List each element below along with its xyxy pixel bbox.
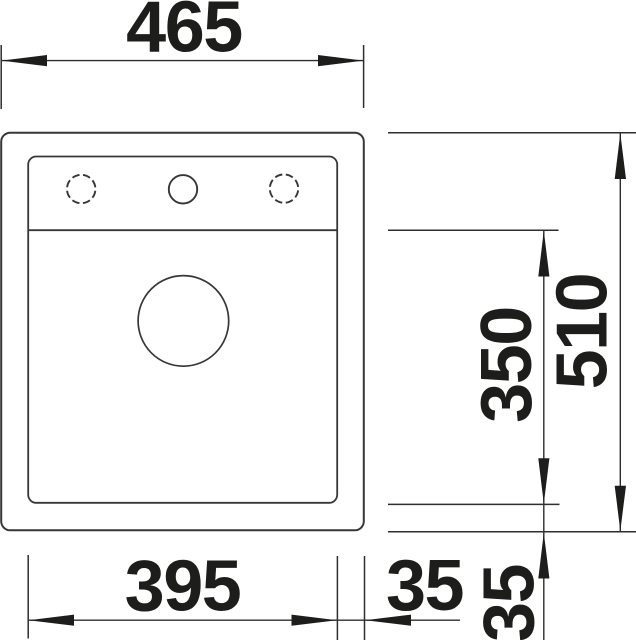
svg-text:395: 395: [125, 547, 241, 627]
svg-text:510: 510: [543, 274, 623, 390]
svg-text:465: 465: [126, 0, 242, 68]
svg-text:35: 35: [386, 546, 464, 626]
svg-text:350: 350: [467, 307, 547, 423]
svg-text:35: 35: [470, 565, 550, 640]
